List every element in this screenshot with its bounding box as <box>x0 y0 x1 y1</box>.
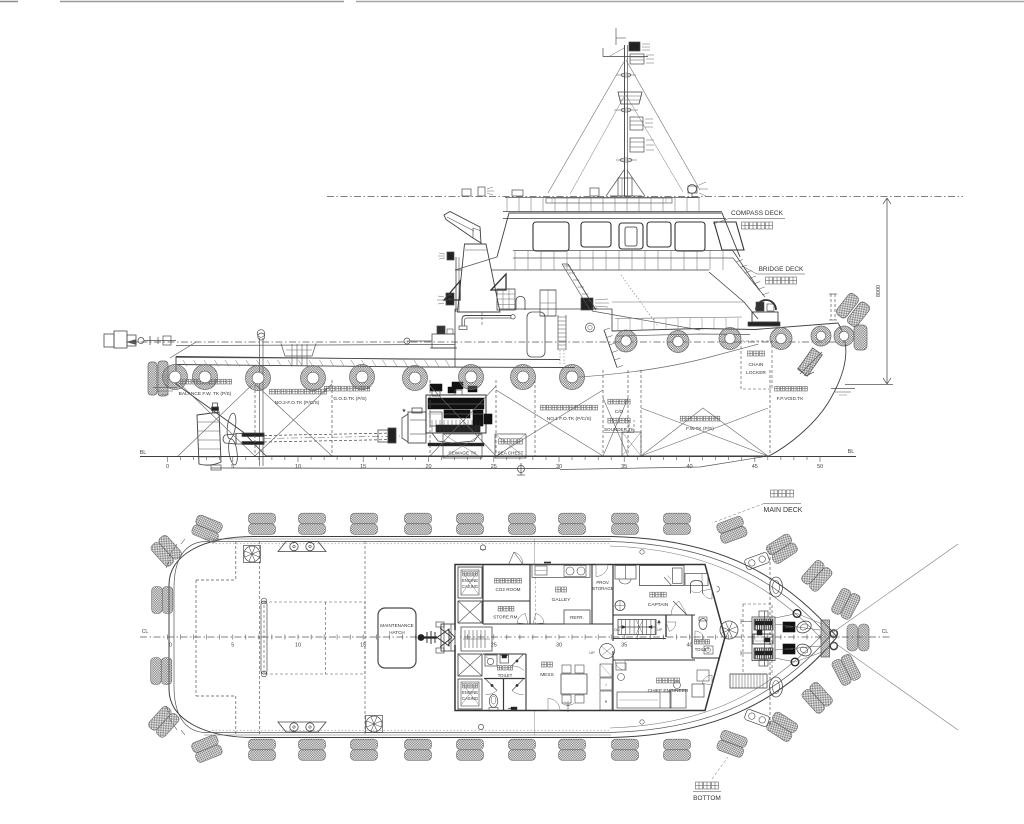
svg-text:SOUNDER TK: SOUNDER TK <box>604 427 635 432</box>
svg-text:CO2 ROOM: CO2 ROOM <box>495 587 520 592</box>
svg-text:HATCH: HATCH <box>389 630 404 635</box>
svg-text:15: 15 <box>360 643 366 649</box>
svg-text:25: 25 <box>491 464 497 470</box>
svg-text:I: I <box>605 682 606 687</box>
svg-text:REFR.: REFR. <box>570 615 584 620</box>
svg-text:MESS: MESS <box>540 672 554 678</box>
svg-text:UP: UP <box>589 651 595 655</box>
svg-text:BL: BL <box>140 450 147 456</box>
svg-text:SEA CHEST: SEA CHEST <box>498 451 524 456</box>
svg-text:30: 30 <box>556 643 562 649</box>
svg-text:TOILET: TOILET <box>695 647 710 652</box>
svg-text:CAPTAIN: CAPTAIN <box>648 602 669 608</box>
svg-text:STORE RM.: STORE RM. <box>493 615 518 620</box>
svg-text:ENGINE: ENGINE <box>462 578 478 583</box>
svg-text:20: 20 <box>425 464 431 470</box>
svg-text:CASING: CASING <box>462 584 478 589</box>
svg-text:F.P.VOID.TK: F.P.VOID.TK <box>777 396 805 402</box>
svg-text:BOTTOM: BOTTOM <box>693 795 721 802</box>
svg-text:CHAIN: CHAIN <box>749 362 764 368</box>
svg-text:MAIN DECK: MAIN DECK <box>764 507 803 514</box>
svg-text:40: 40 <box>686 464 692 470</box>
svg-text:BL: BL <box>848 449 855 455</box>
svg-text:LOCKER: LOCKER <box>746 370 766 376</box>
svg-text:10: 10 <box>295 464 301 470</box>
svg-text:MAINTENANCE: MAINTENANCE <box>380 623 413 628</box>
svg-text:10: 10 <box>295 643 301 649</box>
svg-text:35: 35 <box>621 464 627 470</box>
svg-text:NO.2-F.O.TK (P/C/S): NO.2-F.O.TK (P/C/S) <box>275 400 320 406</box>
svg-text:R: R <box>605 700 608 704</box>
svg-text:PROV.: PROV. <box>596 580 609 585</box>
svg-text:CASING: CASING <box>462 696 478 701</box>
svg-text:STORAGE: STORAGE <box>592 586 613 591</box>
svg-text:CL: CL <box>142 629 149 635</box>
svg-text:8000: 8000 <box>876 285 882 297</box>
svg-text:F.W.TK (P/S): F.W.TK (P/S) <box>686 426 714 432</box>
svg-text:5: 5 <box>231 643 234 649</box>
svg-text:DN: DN <box>614 628 620 632</box>
svg-text:30: 30 <box>556 464 562 470</box>
svg-text:50: 50 <box>817 464 823 470</box>
svg-text:GALLEY: GALLEY <box>552 597 571 603</box>
svg-text:35: 35 <box>621 643 627 649</box>
svg-text:SEWAGE TK: SEWAGE TK <box>448 451 477 457</box>
svg-text:NO.1 F.O.TK (P/C/S): NO.1 F.O.TK (P/C/S) <box>547 416 592 422</box>
svg-text:15: 15 <box>360 464 366 470</box>
svg-text:5: 5 <box>231 464 234 470</box>
svg-text:UP: UP <box>657 628 663 632</box>
svg-text:TOILET: TOILET <box>498 673 513 678</box>
svg-text:C/O: C/O <box>615 409 624 415</box>
svg-text:COMPASS DECK: COMPASS DECK <box>731 210 784 217</box>
svg-text:BALANCE F.W. TK (P/S): BALANCE F.W. TK (P/S) <box>179 391 232 397</box>
svg-text:CL: CL <box>882 629 889 635</box>
svg-text:ENGINE: ENGINE <box>462 690 478 695</box>
svg-text:BRIDGE DECK: BRIDGE DECK <box>759 266 804 273</box>
svg-text:0: 0 <box>169 643 172 649</box>
svg-text:0: 0 <box>166 464 169 470</box>
svg-text:45: 45 <box>752 464 758 470</box>
svg-text:CHIEF ENGINEER: CHIEF ENGINEER <box>648 688 689 694</box>
svg-text:DIRTY OIL TK: DIRTY OIL TK <box>447 442 478 448</box>
svg-text:G.O.D.TK (P/S): G.O.D.TK (P/S) <box>333 396 367 402</box>
svg-text:★: ★ <box>402 408 407 414</box>
